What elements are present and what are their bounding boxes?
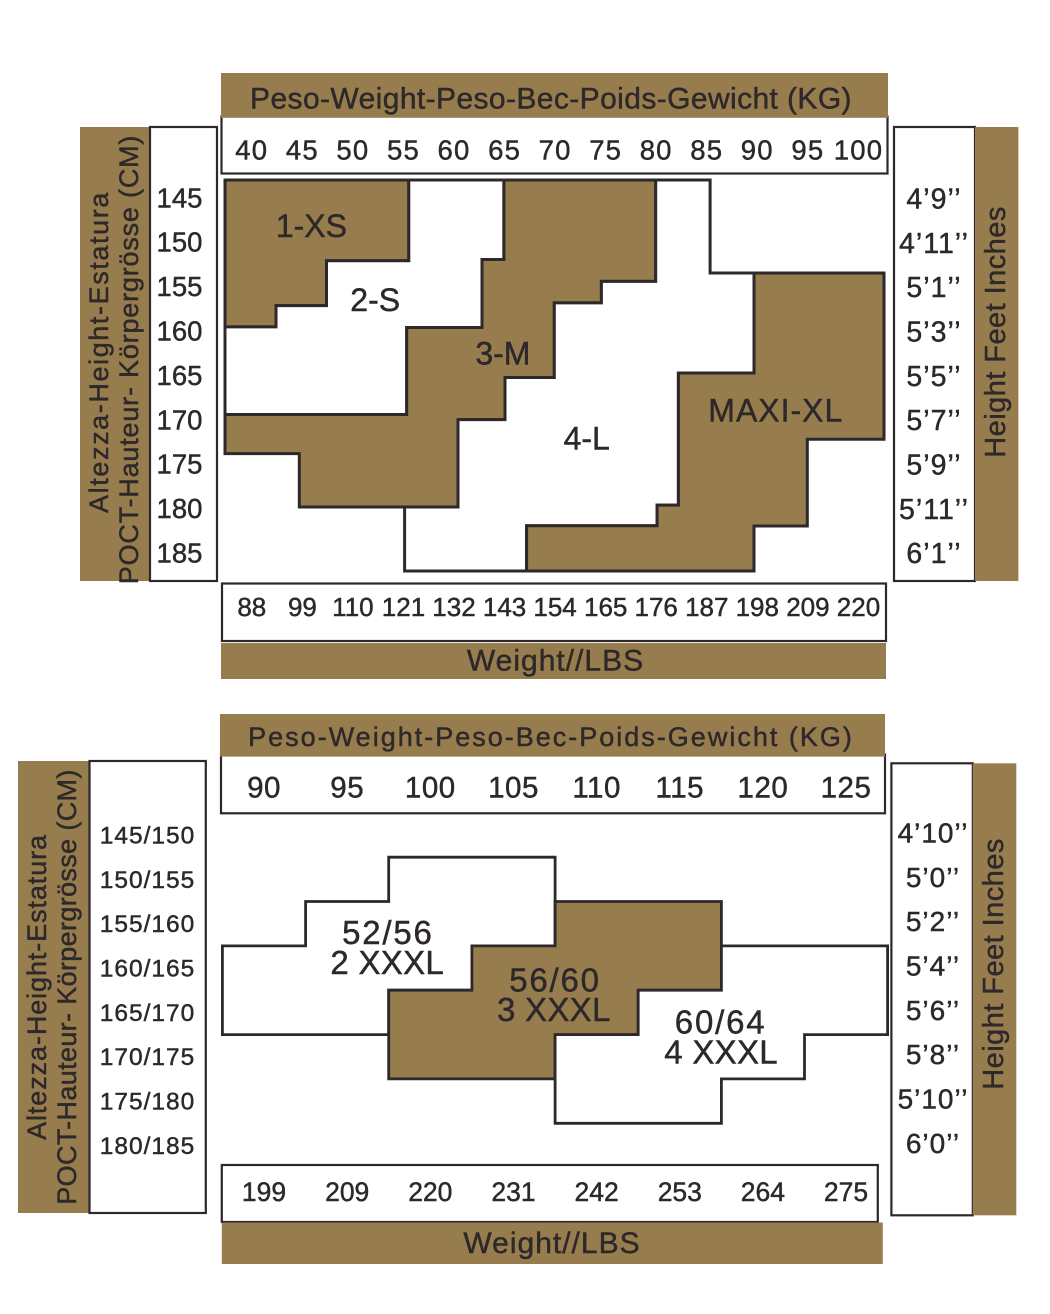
svg-text:105: 105 <box>488 772 539 805</box>
svg-text:1-XS: 1-XS <box>276 208 347 244</box>
svg-text:5’4’’: 5’4’’ <box>906 951 960 982</box>
svg-text:5’2’’: 5’2’’ <box>906 906 960 937</box>
svg-text:175: 175 <box>157 449 203 480</box>
svg-text:145/150: 145/150 <box>100 822 196 849</box>
svg-text:160/165: 160/165 <box>100 956 196 983</box>
svg-text:90: 90 <box>741 134 774 165</box>
svg-text:45: 45 <box>286 134 319 165</box>
svg-text:5’9’’: 5’9’’ <box>906 450 961 482</box>
svg-text:95: 95 <box>791 134 824 165</box>
svg-text:155: 155 <box>157 271 203 302</box>
svg-text:275: 275 <box>824 1177 868 1207</box>
svg-text:3 XXXL: 3 XXXL <box>497 991 611 1028</box>
svg-text:Height Feet Inches: Height Feet Inches <box>980 206 1012 458</box>
svg-text:50: 50 <box>336 134 369 165</box>
svg-text:MAXI-XL: MAXI-XL <box>708 392 843 428</box>
svg-text:Height Feet Inches: Height Feet Inches <box>978 838 1010 1090</box>
svg-text:Altezza-Height-Estatura: Altezza-Height-Estatura <box>22 834 52 1140</box>
svg-text:5’7’’: 5’7’’ <box>906 405 961 437</box>
svg-text:Altezza-Height-Estatura: Altezza-Height-Estatura <box>84 191 114 513</box>
svg-text:150/155: 150/155 <box>100 867 196 894</box>
svg-text:3-M: 3-M <box>475 336 530 372</box>
svg-text:4-L: 4-L <box>564 420 610 456</box>
svg-text:5’5’’: 5’5’’ <box>906 361 961 393</box>
svg-text:Peso-Weight-Peso-Bec-Poids-Gew: Peso-Weight-Peso-Bec-Poids-Gewicht (KG) <box>250 83 852 116</box>
svg-text:2-S: 2-S <box>350 282 400 318</box>
svg-text:209: 209 <box>786 592 829 622</box>
svg-text:165: 165 <box>157 360 203 391</box>
svg-text:160: 160 <box>157 316 203 347</box>
svg-text:145: 145 <box>157 182 203 213</box>
svg-text:4’10’’: 4’10’’ <box>898 817 969 848</box>
svg-text:231: 231 <box>491 1177 535 1207</box>
svg-text:187: 187 <box>685 592 728 622</box>
svg-text:125: 125 <box>821 772 872 805</box>
svg-text:5’8’’: 5’8’’ <box>906 1039 960 1070</box>
svg-text:65: 65 <box>488 134 521 165</box>
svg-text:75: 75 <box>589 134 622 165</box>
svg-text:2 XXXL: 2 XXXL <box>330 944 444 981</box>
svg-text:110: 110 <box>572 772 621 805</box>
svg-text:5’10’’: 5’10’’ <box>898 1084 969 1115</box>
svg-text:115: 115 <box>656 772 705 805</box>
svg-text:95: 95 <box>330 772 364 805</box>
svg-text:143: 143 <box>483 592 526 622</box>
svg-text:170: 170 <box>157 404 203 435</box>
svg-text:220: 220 <box>408 1177 452 1207</box>
svg-text:POCT-Hauteur- Körpergrösse (CM: POCT-Hauteur- Körpergrösse (CM) <box>114 135 144 584</box>
svg-text:185: 185 <box>157 538 203 569</box>
svg-text:90: 90 <box>247 772 281 805</box>
svg-text:180/185: 180/185 <box>100 1133 196 1160</box>
svg-text:242: 242 <box>574 1177 618 1207</box>
svg-text:4’9’’: 4’9’’ <box>906 183 961 215</box>
svg-text:Weight//LBS: Weight//LBS <box>467 645 644 678</box>
svg-text:150: 150 <box>157 227 203 258</box>
svg-text:110: 110 <box>332 592 373 622</box>
svg-text:180: 180 <box>157 493 203 524</box>
svg-text:175/180: 175/180 <box>100 1089 196 1116</box>
svg-text:100: 100 <box>834 134 883 165</box>
svg-text:170/175: 170/175 <box>100 1044 196 1071</box>
svg-text:155/160: 155/160 <box>100 911 196 938</box>
svg-text:70: 70 <box>539 134 572 165</box>
svg-text:198: 198 <box>736 592 779 622</box>
svg-text:60: 60 <box>438 134 471 165</box>
svg-text:165: 165 <box>584 592 627 622</box>
svg-text:4 XXXL: 4 XXXL <box>664 1034 778 1071</box>
svg-text:253: 253 <box>658 1177 702 1207</box>
svg-text:80: 80 <box>640 134 673 165</box>
svg-text:5’1’’: 5’1’’ <box>906 272 961 304</box>
svg-text:99: 99 <box>288 592 317 622</box>
svg-text:POCT-Hauteur- Körpergrösse (CM: POCT-Hauteur- Körpergrösse (CM) <box>52 769 82 1204</box>
svg-text:85: 85 <box>690 134 723 165</box>
svg-text:120: 120 <box>738 772 789 805</box>
svg-text:5’0’’: 5’0’’ <box>906 862 960 893</box>
svg-text:176: 176 <box>635 592 678 622</box>
svg-text:220: 220 <box>837 592 880 622</box>
svg-text:264: 264 <box>741 1177 785 1207</box>
svg-text:Peso-Weight-Peso-Bec-Poids-Gew: Peso-Weight-Peso-Bec-Poids-Gewicht (KG) <box>248 722 854 752</box>
svg-text:40: 40 <box>235 134 268 165</box>
svg-text:5’6’’: 5’6’’ <box>906 995 960 1026</box>
svg-text:5’11’’: 5’11’’ <box>899 494 969 526</box>
svg-text:121: 121 <box>382 592 425 622</box>
svg-text:199: 199 <box>242 1177 286 1207</box>
svg-text:132: 132 <box>432 592 475 622</box>
svg-text:165/170: 165/170 <box>100 1000 196 1027</box>
svg-text:6’1’’: 6’1’’ <box>906 538 961 570</box>
svg-text:Weight//LBS: Weight//LBS <box>463 1227 640 1260</box>
svg-text:4’11’’: 4’11’’ <box>899 228 969 260</box>
svg-text:100: 100 <box>405 772 456 805</box>
svg-text:88: 88 <box>237 592 266 622</box>
svg-text:55: 55 <box>387 134 420 165</box>
svg-text:5’3’’: 5’3’’ <box>906 317 961 349</box>
svg-text:209: 209 <box>325 1177 369 1207</box>
svg-text:6’0’’: 6’0’’ <box>906 1128 960 1159</box>
svg-text:154: 154 <box>533 592 576 622</box>
